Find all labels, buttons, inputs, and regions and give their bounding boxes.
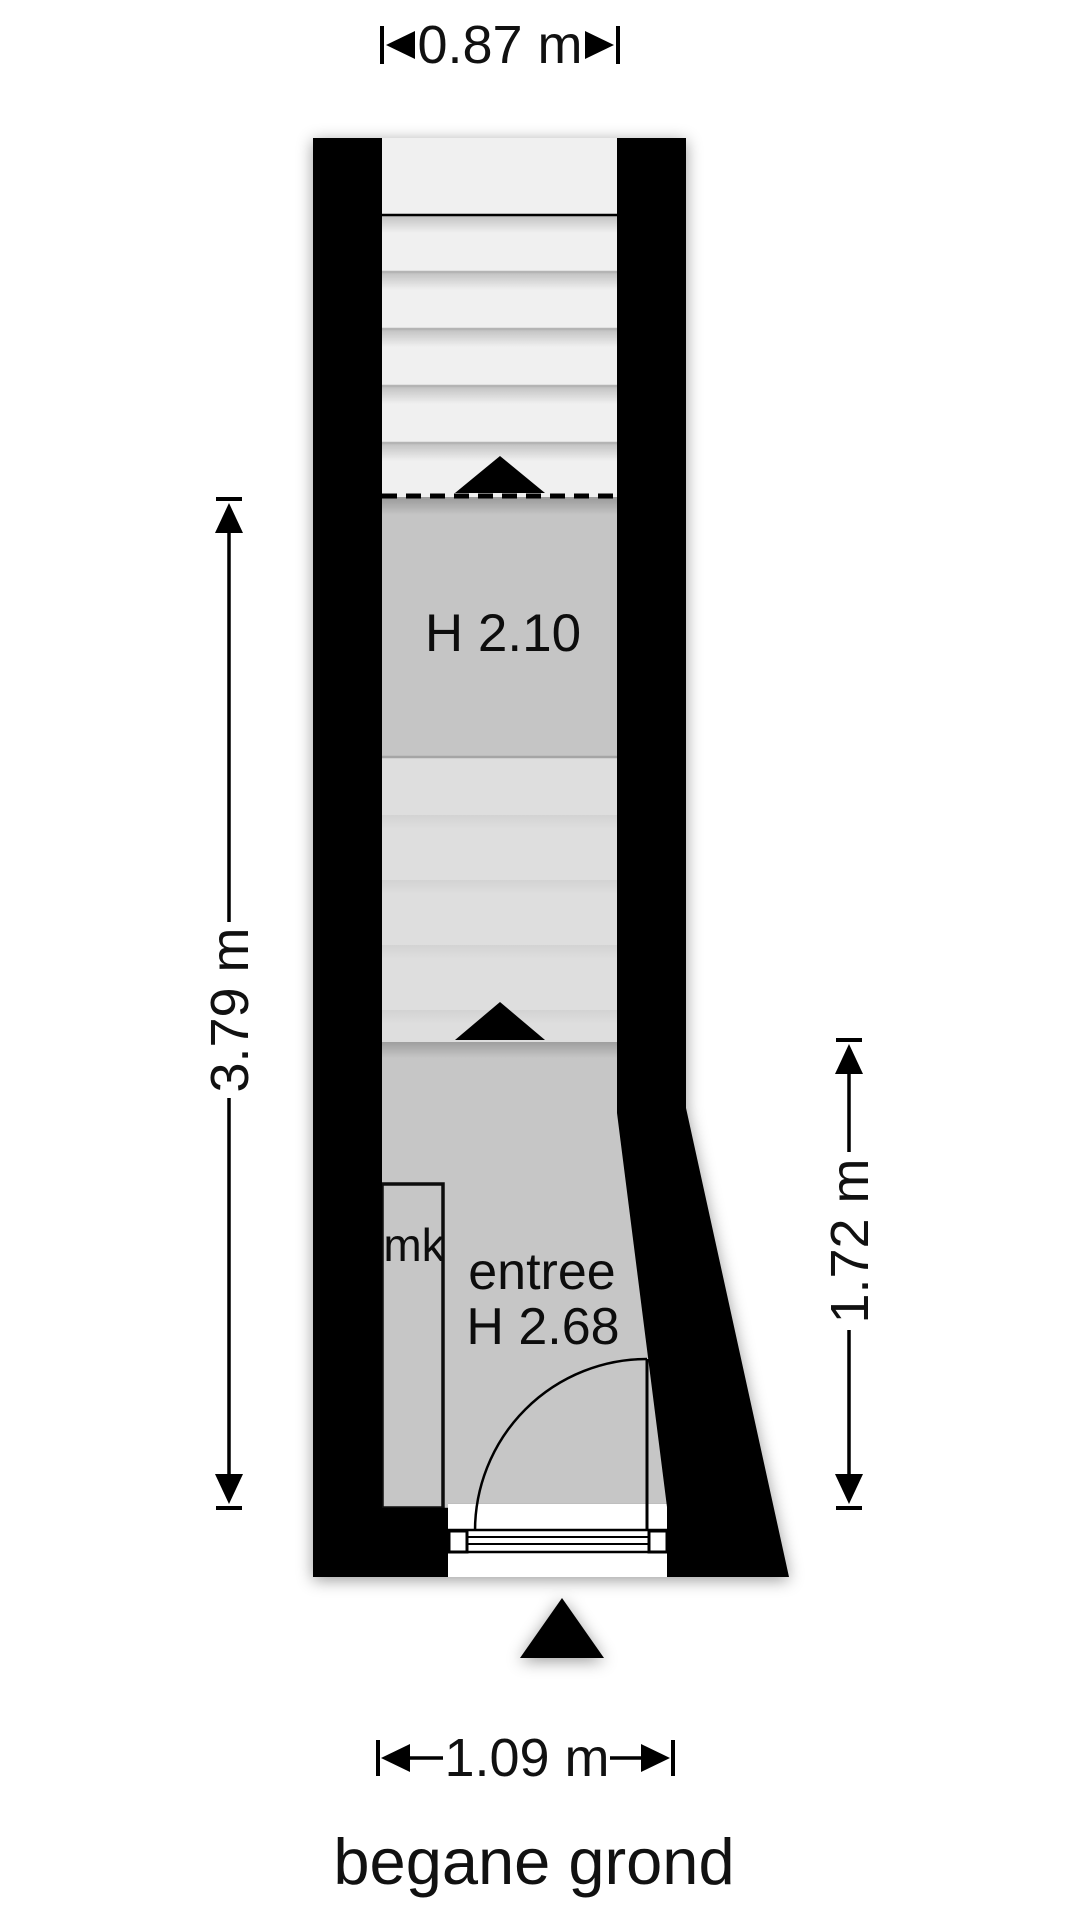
plan-body: H 2.10 entree H 2.68 mk xyxy=(313,138,789,1658)
room-h210-label: H 2.10 xyxy=(425,604,581,663)
entree-top-shade xyxy=(382,1042,618,1058)
dim-arrow-left xyxy=(381,1744,410,1772)
wall-left xyxy=(313,138,382,1577)
floor-plan-page: H 2.10 entree H 2.68 mk xyxy=(0,0,1080,1920)
tread xyxy=(382,386,618,404)
entree-name-label: entree xyxy=(468,1243,615,1301)
dim-arrow-left xyxy=(386,31,415,59)
floor-plan-svg: H 2.10 entree H 2.68 mk xyxy=(0,0,1080,1920)
meter-closet-label: mk xyxy=(383,1219,445,1271)
entree-height-label: H 2.68 xyxy=(466,1298,619,1356)
room-h210-top-shade xyxy=(382,499,618,515)
wall-bottom-left xyxy=(313,1508,448,1577)
mid-shade xyxy=(382,945,618,959)
dimension-right: 1.72 m xyxy=(820,1040,880,1508)
dimension-left: 3.79 m xyxy=(200,499,260,1508)
dimension-top: 0.87 m xyxy=(382,15,618,75)
dimension-left-label: 3.79 m xyxy=(200,927,260,1092)
mid-shade xyxy=(382,815,618,829)
dimension-bottom-label: 1.09 m xyxy=(444,1728,609,1788)
mid-shade xyxy=(382,880,618,894)
dimension-bottom: 1.09 m xyxy=(378,1728,673,1788)
tread xyxy=(382,215,618,233)
stair-flight-lower xyxy=(382,757,618,1042)
entrance-marker-triangle xyxy=(520,1598,604,1658)
tread xyxy=(382,272,618,290)
mid-area xyxy=(382,757,618,1042)
threshold-recess xyxy=(448,1504,667,1577)
door-jamb-right xyxy=(649,1531,667,1552)
dimension-top-label: 0.87 m xyxy=(417,15,582,75)
dimension-right-label: 1.72 m xyxy=(820,1158,880,1323)
page-title: begane grond xyxy=(333,1825,734,1898)
tread xyxy=(382,329,618,347)
dim-arrow-right xyxy=(585,31,614,59)
door-jamb-left xyxy=(449,1531,467,1552)
stair-flight-upper xyxy=(382,138,618,497)
dim-arrow-right xyxy=(641,1744,670,1772)
room-h210: H 2.10 xyxy=(382,499,618,757)
